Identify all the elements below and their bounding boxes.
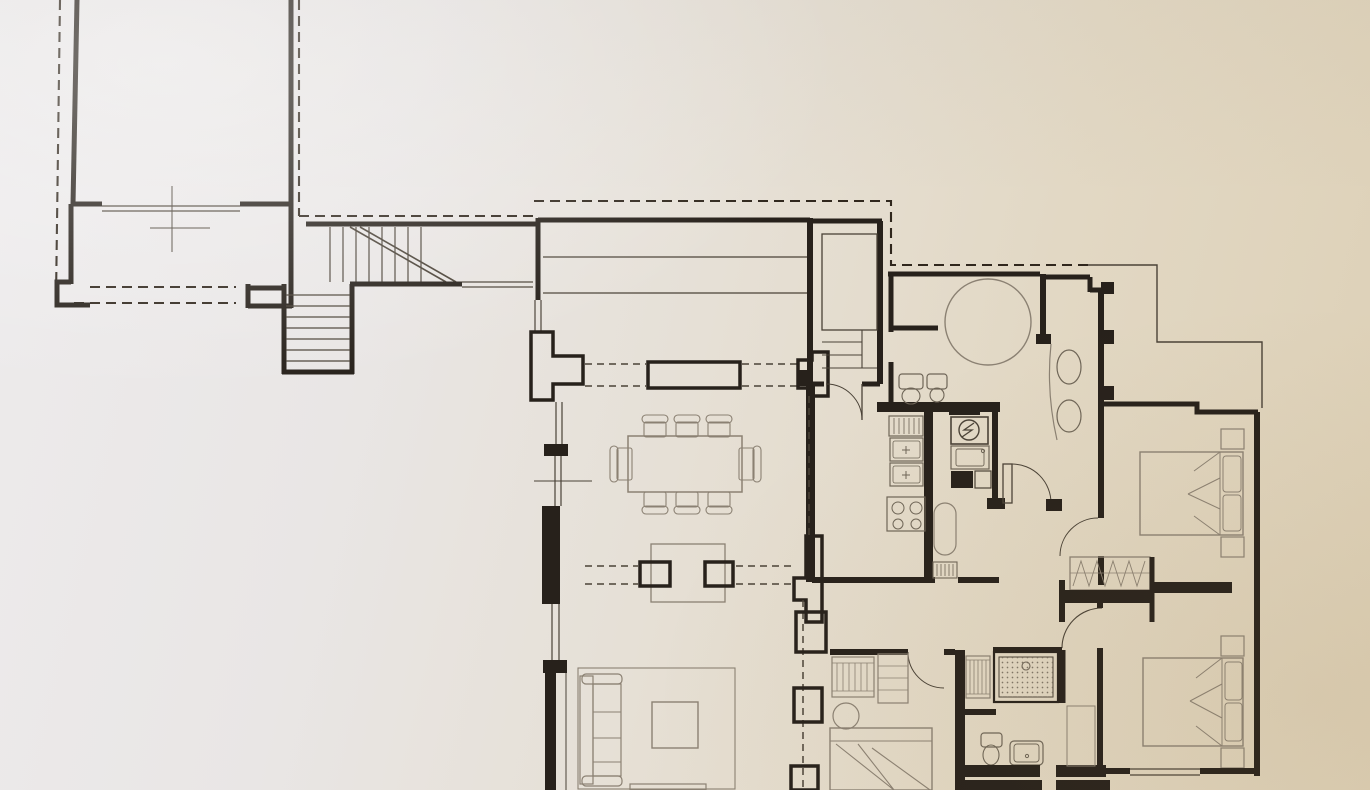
living-room [578, 668, 735, 790]
window-lines [552, 604, 559, 662]
nightstand [1221, 636, 1244, 656]
door-leaf [1003, 464, 1012, 503]
floor-inlay-square [651, 544, 725, 602]
pillar [705, 562, 733, 586]
hanger-wardrobe [832, 657, 874, 697]
counter-block [949, 402, 980, 415]
door-swing-arc [1060, 518, 1098, 556]
fridge-block [951, 471, 973, 488]
terrace-thin-boundary [1088, 265, 1262, 408]
dining-room-structure [531, 218, 828, 790]
round-side-table [833, 703, 859, 729]
window-lines [102, 206, 240, 211]
bedroom-bottom-left [791, 396, 965, 790]
survey-cross [150, 186, 210, 252]
counter-edge [1049, 344, 1057, 440]
bidet [927, 374, 947, 402]
staircase-lower-flight [286, 295, 350, 361]
pillow [1223, 495, 1241, 531]
pillow [1225, 662, 1242, 700]
gas-hob [887, 497, 925, 531]
terrace-deck-steps [543, 257, 807, 293]
double-bed [1143, 658, 1243, 746]
nightstand [1221, 537, 1244, 557]
blanket-fold-lines [1190, 658, 1222, 746]
window-lines [556, 402, 562, 444]
door-swing-arc [1062, 608, 1102, 648]
pillar [640, 562, 670, 586]
window-lines [1130, 769, 1200, 775]
floor-plan-photo: Scanned architectural floor plan photogr… [0, 0, 1370, 790]
door-swing-arc [908, 652, 944, 688]
boundary-dashed-line [56, 0, 60, 298]
nightstand [1221, 429, 1244, 449]
stair-cut-line [350, 227, 456, 282]
nightstand [1221, 748, 1244, 768]
utility-sink [951, 446, 989, 469]
door-swing-arc [826, 384, 862, 420]
vent-grill [933, 562, 957, 578]
terrace-outline [534, 201, 1262, 408]
sofa [580, 674, 622, 786]
rug [578, 668, 735, 789]
annex-room [56, 0, 299, 308]
cabinet [975, 471, 991, 488]
bedroom-top-right [1062, 400, 1258, 776]
appliance-circled-symbol [951, 417, 988, 444]
sideboard-bar [648, 362, 740, 388]
drainer-grill [894, 418, 919, 434]
pillar [791, 766, 818, 790]
stair-flight-outline [822, 234, 877, 330]
beam-dashed-line [585, 364, 797, 386]
pillow [1225, 703, 1242, 741]
kitchen [806, 384, 1005, 582]
kitchen-sink-counter [889, 416, 923, 486]
beam-dashed-line [585, 566, 792, 584]
pillar [794, 688, 822, 722]
toilet [899, 374, 923, 404]
boiler-column [934, 503, 956, 555]
dining-chairs [610, 415, 761, 514]
bedroom-bottom-right [1100, 601, 1257, 776]
shower-bathroom [957, 650, 1110, 790]
vanity-basins [1049, 344, 1081, 440]
closet-niche [1067, 706, 1095, 766]
door-stop [1046, 499, 1062, 511]
blanket-fold-lines [836, 744, 930, 790]
staircase-upper-flight [330, 227, 456, 282]
dining-table-group [610, 415, 761, 514]
window-lines [535, 300, 541, 332]
hallway-doors [1003, 464, 1098, 556]
floor-plan-drawing: Scanned architectural floor plan photogr… [0, 0, 1370, 790]
entry-steps [822, 330, 877, 368]
round-tub [945, 279, 1031, 365]
zigzag-hanger-wardrobe [1070, 557, 1150, 590]
pillow [1223, 456, 1241, 492]
washbasin [1010, 741, 1043, 765]
dining-table [628, 436, 742, 492]
door-swing-arc [1012, 464, 1051, 503]
blanket-fold-lines [1188, 452, 1220, 535]
double-bed [1140, 452, 1243, 535]
opening-lines [462, 282, 533, 287]
toilet [981, 733, 1002, 765]
shower-tray [994, 652, 1058, 702]
coffee-table [652, 702, 698, 748]
double-bed-partial [830, 728, 932, 790]
shelved-closet [878, 654, 908, 703]
hanger-wardrobe [966, 656, 990, 698]
pillar [531, 332, 583, 400]
bathroom-round-tub [888, 274, 1114, 440]
